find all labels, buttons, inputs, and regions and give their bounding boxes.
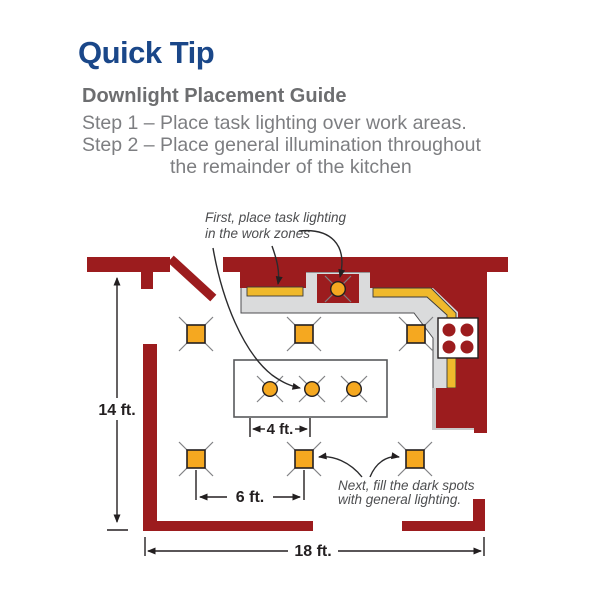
stove-body [438, 318, 478, 358]
annotation-general-line-1: Next, fill the dark spots [338, 478, 475, 493]
dimension-room-depth: 14 ft. [98, 278, 135, 530]
wall-bottom-right [402, 521, 485, 531]
door-leaf [174, 262, 210, 295]
wall-stub-bottom-right [473, 499, 485, 531]
cabinet-left [240, 272, 306, 288]
dimension-general-spacing-label: 6 ft. [236, 489, 264, 506]
downlight-icon [399, 317, 433, 351]
dimension-room-depth-label: 14 ft. [98, 402, 135, 419]
cabinet-lower-right [456, 358, 474, 388]
dimension-island-spacing: 4 ft. [250, 418, 310, 438]
dimension-island-spacing-label: 4 ft. [267, 421, 294, 438]
annotation-task-line-1: First, place task lighting [205, 210, 347, 225]
task-light-strip-left [247, 287, 303, 296]
quick-tip-infographic: Quick Tip Downlight Placement Guide Step… [0, 0, 600, 600]
wall-top [223, 257, 508, 272]
downlight-icon [287, 317, 321, 351]
stove [438, 318, 478, 358]
downlight-icon [398, 442, 432, 476]
downlight-icon [179, 317, 213, 351]
burner [443, 341, 456, 354]
arrow-to-downlight-left [319, 457, 362, 477]
wall-stub-top-left [141, 272, 153, 289]
wall-top-left [87, 257, 170, 272]
annotation-general-line-2: with general lighting. [338, 492, 461, 507]
kitchen-floor-plan: 14 ft. 4 ft. 6 ft. 18 ft. Fi [0, 0, 600, 600]
arrow-to-downlight-right [370, 457, 399, 477]
task-light-strip-lower [447, 358, 456, 388]
burner [443, 324, 456, 337]
dimension-room-width: 18 ft. [145, 537, 484, 560]
island [234, 360, 387, 417]
burner [461, 324, 474, 337]
annotation-general-lighting: Next, fill the dark spots with general l… [319, 457, 475, 507]
dimension-room-width-label: 18 ft. [294, 543, 331, 560]
burner [461, 341, 474, 354]
annotation-task-line-2: in the work zones [205, 226, 310, 241]
wall-left [143, 344, 157, 531]
fridge [436, 388, 476, 428]
wall-bottom-left [143, 521, 313, 531]
